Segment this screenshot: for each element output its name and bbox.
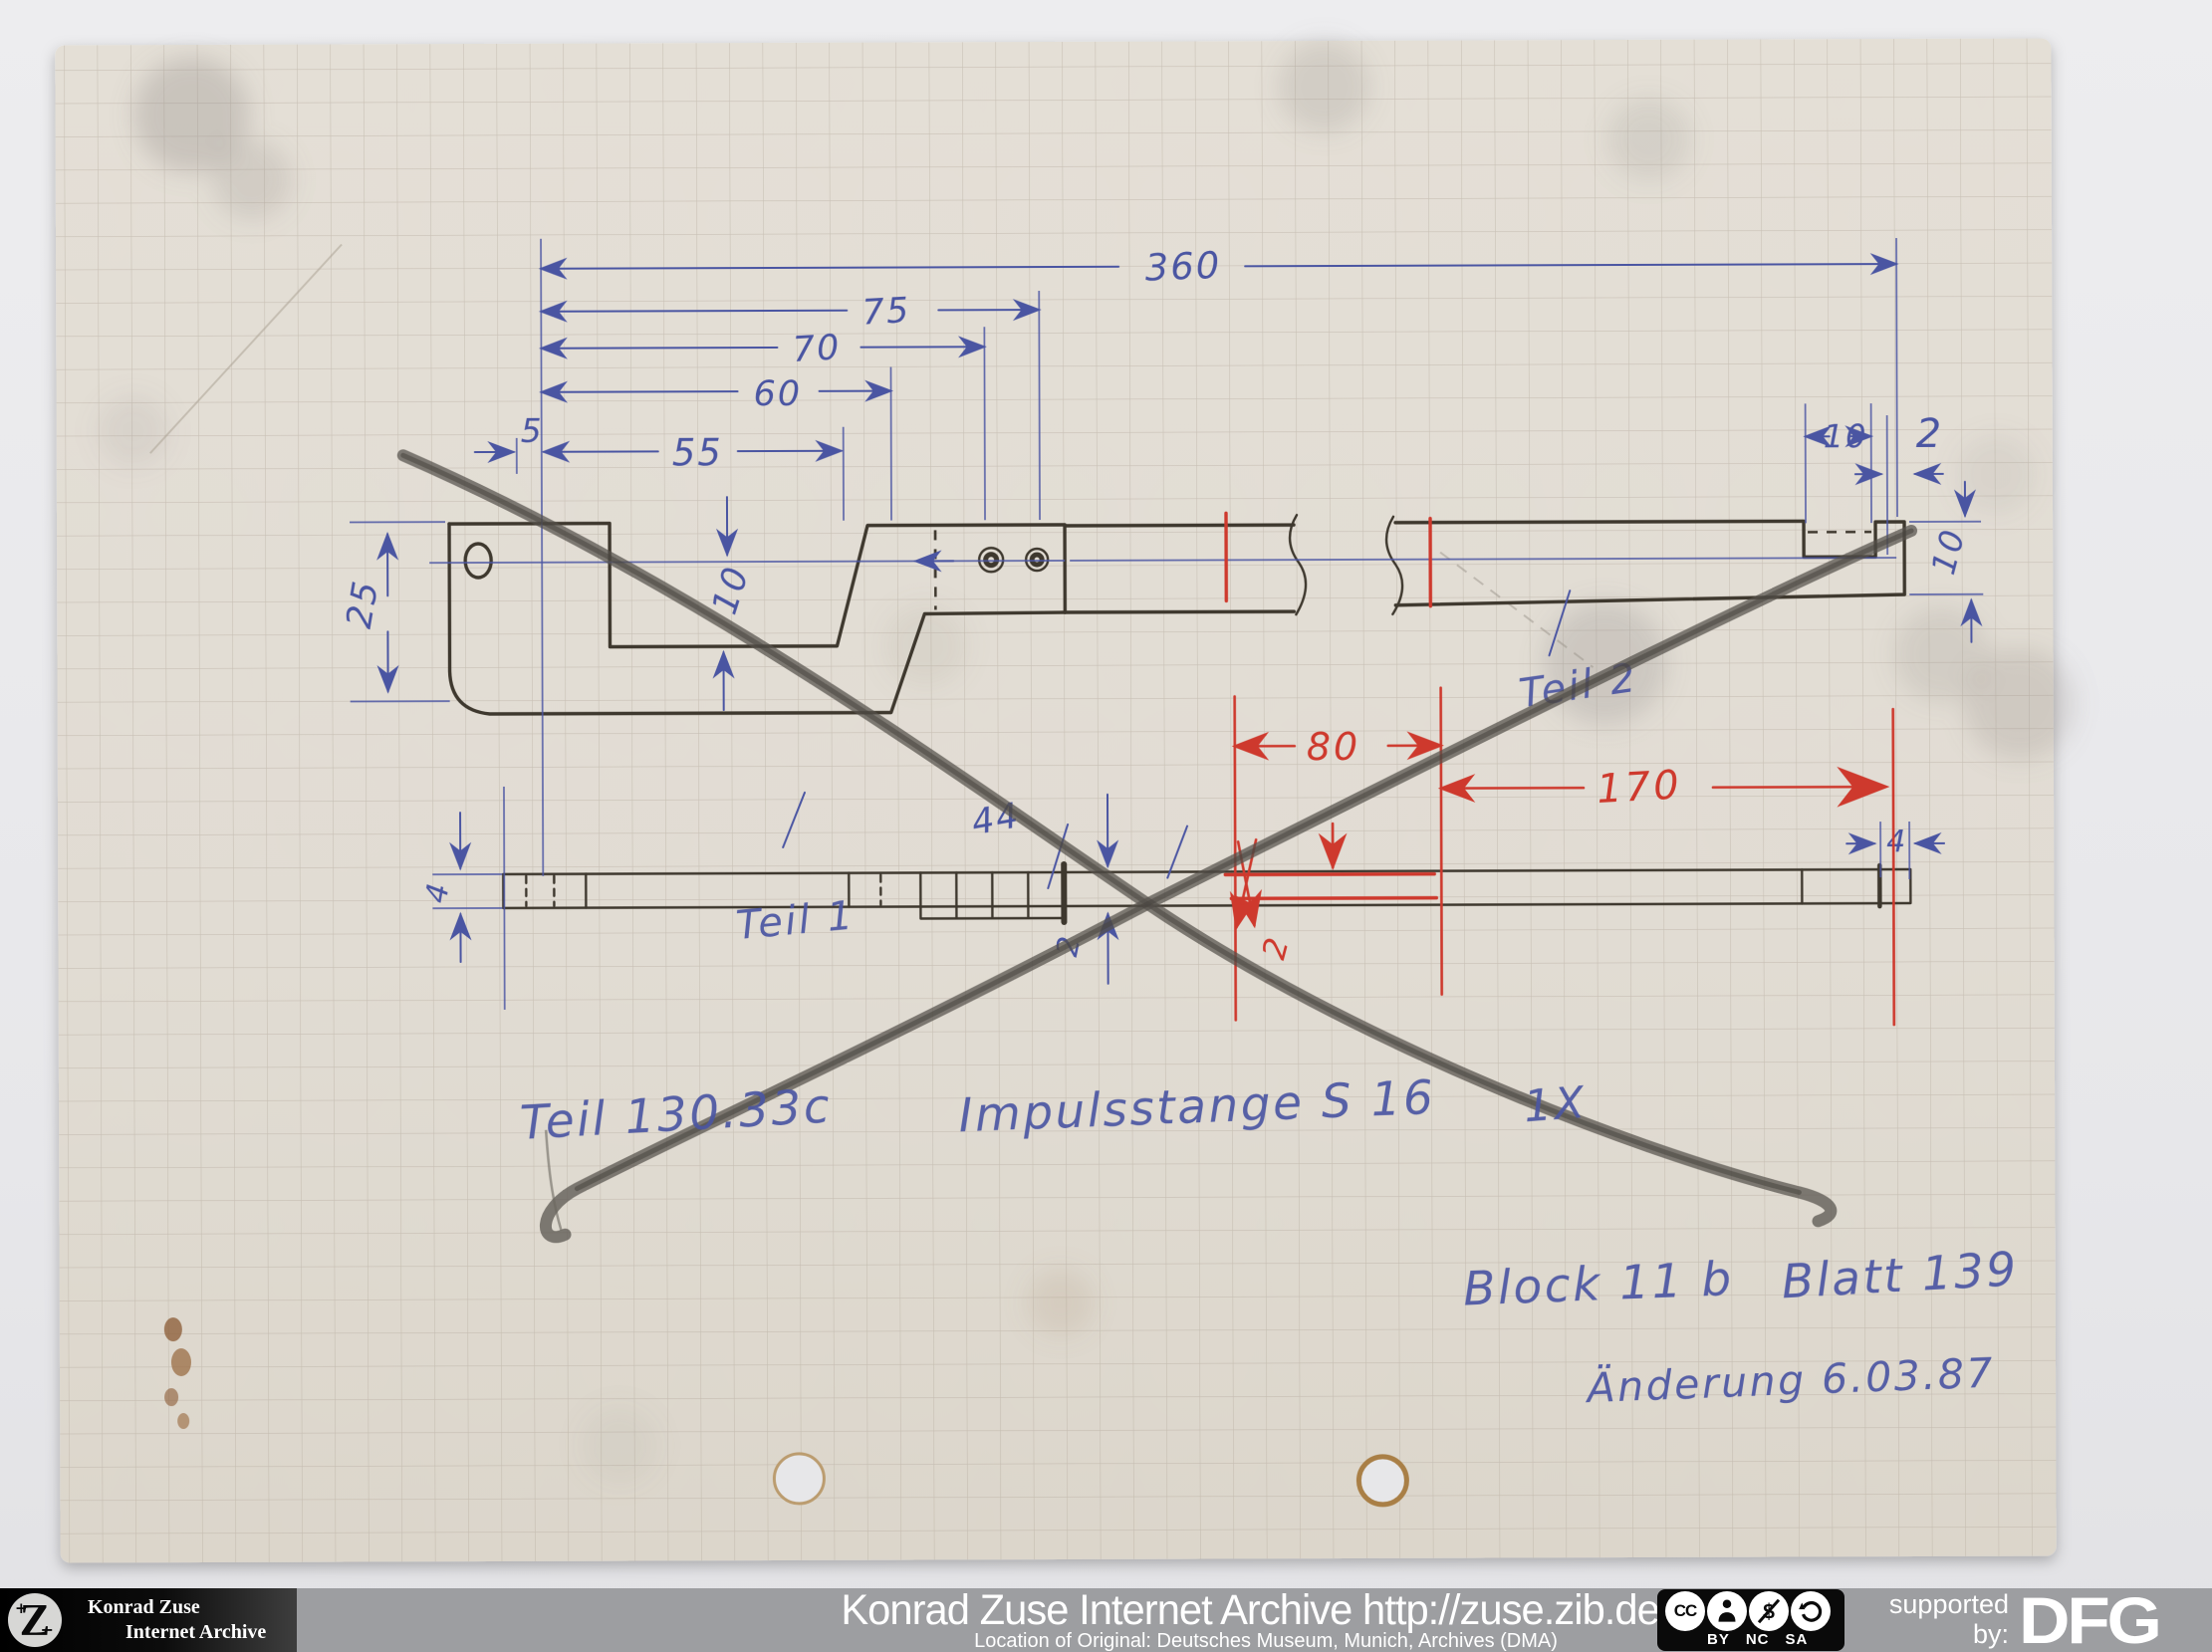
quantity: 1X bbox=[1522, 1077, 1589, 1132]
dim-75-label: 75 bbox=[861, 291, 912, 334]
supported-line1: supported bbox=[1871, 1590, 2009, 1620]
archive-wordmark-line2: Internet Archive bbox=[88, 1620, 266, 1645]
scan-canvas: 360 75 70 60 5 55 25 bbox=[0, 0, 2212, 1652]
dim-4-right-label: 4 bbox=[1886, 825, 1907, 859]
dim-25-label: 25 bbox=[340, 577, 387, 631]
supported-line2: by: bbox=[1871, 1620, 2009, 1650]
cc-icon: CC bbox=[1665, 1591, 1705, 1631]
cc-icons: CC $ bbox=[1665, 1591, 1831, 1631]
scanned-page: 360 75 70 60 5 55 25 bbox=[0, 0, 2212, 1652]
dim-2-notch-label: 2 bbox=[1916, 411, 1944, 457]
archive-wordmark: Konrad Zuse Internet Archive bbox=[88, 1595, 266, 1645]
dim-60-label: 60 bbox=[754, 374, 803, 414]
dfg-logo: DFG bbox=[2019, 1582, 2159, 1652]
logo-minus-sign: − bbox=[41, 1620, 54, 1639]
dim-170-label: 170 bbox=[1596, 762, 1683, 813]
footer-subtitle: Location of Original: Deutsches Museum, … bbox=[738, 1630, 1794, 1652]
archive-wordmark-line1: Konrad Zuse bbox=[88, 1595, 266, 1620]
dim-55-label: 55 bbox=[672, 431, 723, 474]
cc-sa-label: SA bbox=[1786, 1631, 1809, 1648]
dim-360-label: 360 bbox=[1144, 244, 1222, 290]
dim-70-label: 70 bbox=[792, 328, 843, 370]
dim-10-notch-label: 10 bbox=[1824, 417, 1868, 455]
cc-icon-text: CC bbox=[1674, 1601, 1697, 1621]
footer-bar: + Z − Konrad Zuse Internet Archive Konra… bbox=[0, 1588, 2212, 1652]
cc-labels: BY NC SA bbox=[1707, 1631, 1837, 1648]
archive-logo-block: + Z − Konrad Zuse Internet Archive bbox=[0, 1588, 297, 1652]
supported-by-text: supported by: bbox=[1871, 1590, 2009, 1649]
dim-5-label: 5 bbox=[521, 411, 544, 450]
footer-right: CC $ BY NC SA supported by: DFG bbox=[1654, 1588, 2212, 1652]
footer-title: Konrad Zuse Internet Archive http://zuse… bbox=[738, 1586, 1762, 1635]
cc-by-label: BY bbox=[1707, 1631, 1730, 1648]
cc-by-icon bbox=[1707, 1591, 1747, 1631]
cc-license-badge: CC $ BY NC SA bbox=[1657, 1589, 1844, 1651]
cc-nc-icon: $ bbox=[1749, 1591, 1789, 1631]
cc-sa-icon bbox=[1791, 1591, 1831, 1631]
zuse-logo: + Z − bbox=[8, 1593, 62, 1647]
cc-nc-label: NC bbox=[1746, 1631, 1770, 1648]
block-note: Block 11 b bbox=[1462, 1252, 1735, 1316]
dim-80-label: 80 bbox=[1307, 725, 1361, 769]
